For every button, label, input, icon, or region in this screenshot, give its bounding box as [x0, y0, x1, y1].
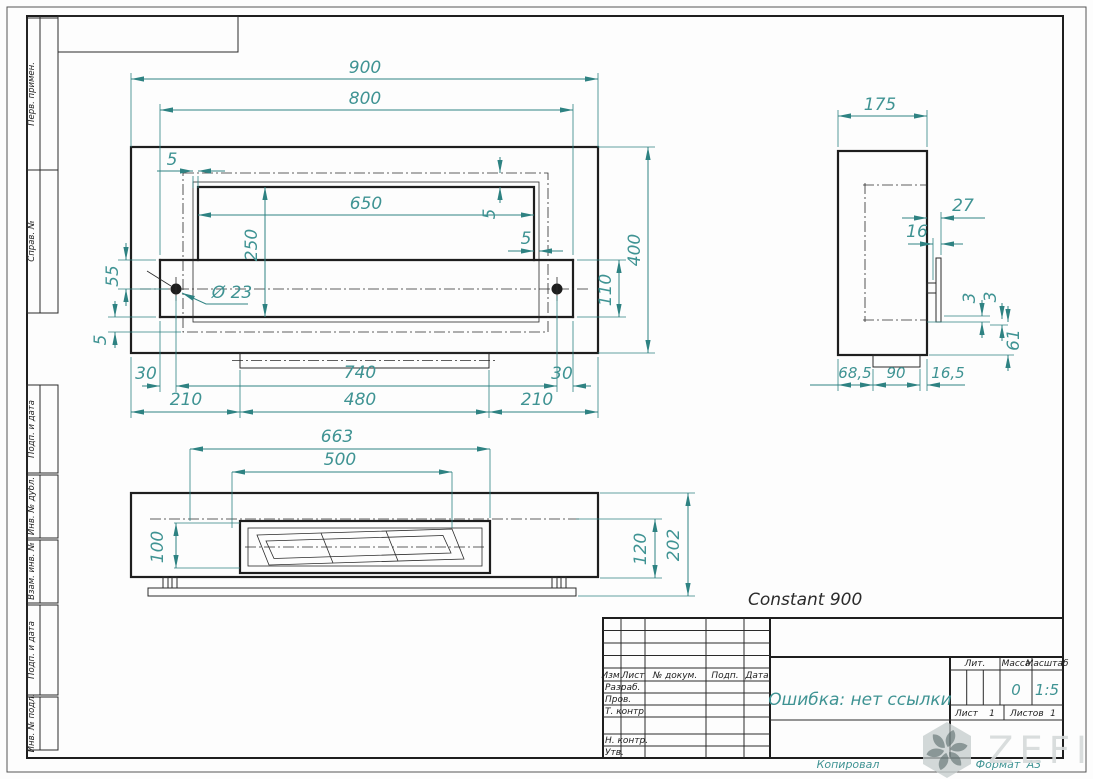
zefire-logo-icon: [923, 722, 971, 778]
bottom-view: [131, 493, 598, 596]
dim-front-650: 650: [350, 194, 382, 214]
dim-front-5-right: 5: [521, 229, 532, 249]
tb-row-razrab: Разраб.: [605, 683, 640, 693]
tb-row-utv: Утв.: [605, 748, 624, 758]
tb-scale-value: 1:5: [1035, 681, 1059, 699]
kopiroval-label: Копировал: [817, 758, 880, 771]
dim-front-hole-dia: Ø 23: [211, 283, 252, 303]
tb-document-name: Ошибка: нет ссылки: [768, 690, 951, 710]
dim-front-5-bottomleft: 5: [91, 335, 111, 346]
dim-front-800: 800: [349, 89, 381, 109]
dim-bottom-500: 500: [324, 450, 356, 470]
tb-header-izm: Изм.: [601, 671, 622, 681]
side-bracket: [927, 283, 936, 293]
tb-header-data: Дата: [744, 671, 768, 681]
dim-front-400: 400: [625, 234, 645, 266]
margin-label-vzam-inv: Взам. инв. №: [27, 542, 37, 600]
margin-label-sprav-no: Справ. №: [27, 220, 37, 262]
dim-side-90: 90: [886, 364, 905, 382]
dim-side-27: 27: [952, 196, 974, 216]
leg: [163, 577, 168, 588]
dim-front-30-left: 30: [135, 364, 157, 384]
dim-bottom-120: 120: [631, 533, 651, 565]
tb-header-podp: Подп.: [711, 671, 738, 681]
side-view: [838, 151, 990, 367]
dim-side-16-5: 16,5: [931, 364, 964, 382]
dim-front-740: 740: [344, 363, 376, 383]
tb-mass-value: 0: [1011, 681, 1021, 699]
dim-side-68-5: 68,5: [838, 364, 871, 382]
drawing-sheet: Перв. примен. Справ. № Подп. и дата Инв.…: [0, 0, 1093, 779]
dim-front-110: 110: [596, 274, 616, 306]
product-name-label: Constant 900: [748, 590, 862, 610]
dim-front-900: 900: [349, 58, 381, 78]
margin-stamps: Перв. примен. Справ. № Подп. и дата Инв.…: [27, 18, 58, 752]
margin-label-perv-primen: Перв. примен.: [27, 62, 37, 126]
dim-front-480: 480: [344, 390, 376, 410]
front-view: [131, 147, 598, 368]
tb-row-tkontr: Т. контр.: [605, 707, 647, 717]
bottom-outer-body: [131, 493, 598, 577]
margin-label-inv-dubl: Инв. № дубл.: [27, 477, 37, 535]
dim-side-61: 61: [1004, 329, 1024, 351]
dim-front-5-topleft: 5: [167, 150, 178, 170]
dim-side-3a: 3: [960, 293, 980, 304]
zefire-watermark-text: ZEFIRE: [988, 729, 1093, 772]
tb-header-list: Лист: [621, 671, 646, 681]
leg: [552, 577, 557, 588]
front-view-dimensions: 900 800 650 250 400 110 5 5 5 55 5: [91, 58, 655, 418]
dim-front-5-topright: 5: [480, 209, 500, 220]
dim-front-210-left: 210: [170, 390, 202, 410]
dim-front-30-right: 30: [551, 364, 573, 384]
dim-side-175: 175: [864, 95, 896, 115]
dim-front-250: 250: [242, 229, 262, 261]
dim-side-3b: 3: [981, 292, 1001, 303]
tb-scale-label: Масштаб: [1026, 659, 1069, 669]
tb-sheets-value: 1: [1050, 709, 1056, 719]
tb-lit-label: Лит.: [964, 659, 986, 669]
bottom-view-dimensions: 663 500 100 120 202: [148, 427, 695, 596]
leg: [561, 577, 566, 588]
dim-side-16: 16: [906, 222, 928, 242]
side-glass-plate: [936, 258, 941, 322]
dim-bottom-663: 663: [321, 427, 353, 447]
margin-label-inv-podl: Инв. № подл.: [27, 694, 37, 753]
dim-bottom-100: 100: [148, 531, 168, 563]
margin-label-podp-data-1: Подп. и дата: [27, 400, 37, 458]
tb-sheet-value: 1: [989, 709, 995, 719]
tb-row-prov: Пров.: [605, 695, 631, 705]
base-plate: [148, 588, 576, 596]
tb-header-ndokum: № докум.: [652, 671, 697, 681]
zefire-watermark: ZEFIRE: [923, 722, 1093, 778]
tb-sheet-label: Лист: [954, 709, 979, 719]
side-outer-body: [838, 151, 927, 355]
tb-sheets-label: Листов: [1009, 709, 1044, 719]
tb-row-nkontr: Н. контр.: [605, 736, 648, 746]
side-view-dimensions: 175 27 16 3 3 61 68,5 90 16,5: [810, 95, 1024, 391]
margin-label-podp-data-2: Подп. и дата: [27, 621, 37, 679]
leg: [172, 577, 177, 588]
dim-bottom-202: 202: [664, 529, 684, 561]
dim-front-210-right: 210: [521, 390, 553, 410]
technical-drawing: Перв. примен. Справ. № Подп. и дата Инв.…: [0, 0, 1093, 779]
dim-front-55: 55: [103, 265, 123, 287]
